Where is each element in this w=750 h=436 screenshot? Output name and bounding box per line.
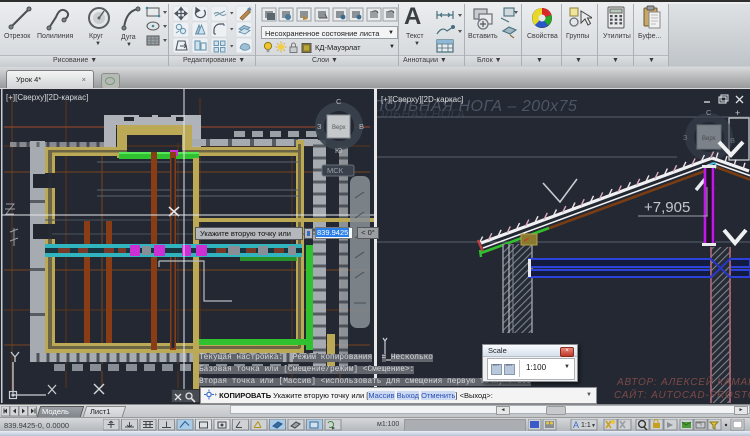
svg-text:[+][Сверху][2D-каркас]: [+][Сверху][2D-каркас] xyxy=(381,95,463,104)
svg-text:Ю: Ю xyxy=(335,146,343,155)
svg-text:+7,905: +7,905 xyxy=(644,199,690,216)
svg-text:1:1: 1:1 xyxy=(581,422,591,429)
svg-text:З: З xyxy=(683,133,688,142)
svg-text:[+][Сверху][2D-каркас]: [+][Сверху][2D-каркас] xyxy=(6,93,88,102)
svg-text:ОЛЬНАЯ НОГА: ОЛЬНАЯ НОГА xyxy=(377,107,465,121)
svg-text:Верх: Верх xyxy=(702,136,716,142)
svg-text:С: С xyxy=(336,97,342,106)
svg-text:▼: ▼ xyxy=(591,423,596,429)
svg-text:З: З xyxy=(317,122,322,131)
svg-text:МСК: МСК xyxy=(327,166,344,175)
svg-text:В: В xyxy=(730,136,735,145)
svg-text:+: + xyxy=(735,108,740,118)
svg-text:Верх: Верх xyxy=(332,125,346,131)
svg-text:САЙТ: AUTOCAD-PROSTO.RU: САЙТ: AUTOCAD-PROSTO.RU xyxy=(614,388,750,401)
svg-text:A: A xyxy=(573,420,579,430)
svg-text:АВТОР: АЛЕКСЕЙ КАМАНИН: АВТОР: АЛЕКСЕЙ КАМАНИН xyxy=(616,375,750,388)
svg-text:С: С xyxy=(706,108,712,117)
svg-text:В: В xyxy=(359,122,364,131)
